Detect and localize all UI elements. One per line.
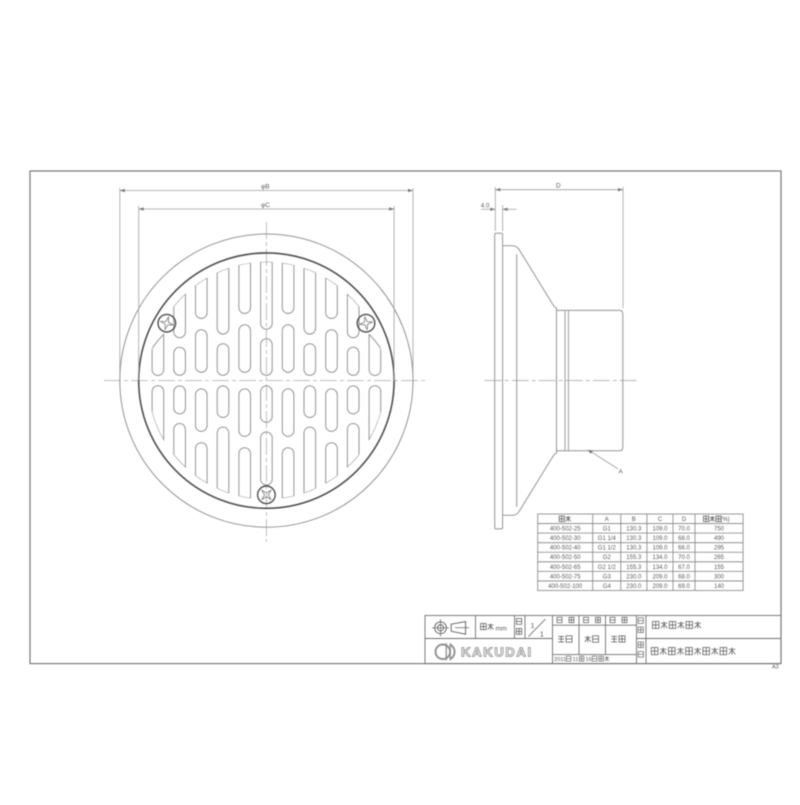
svg-text:130.3: 130.3	[626, 527, 642, 533]
svg-text:109.0: 109.0	[652, 536, 668, 542]
svg-text:G1 1/4: G1 1/4	[598, 536, 617, 542]
svg-text:A3: A3	[772, 665, 779, 671]
svg-text:400-502-40: 400-502-40	[550, 546, 581, 552]
svg-text:400-502-30: 400-502-30	[550, 536, 581, 542]
svg-text:G1 1/2: G1 1/2	[598, 546, 617, 552]
svg-text:G4: G4	[603, 584, 612, 590]
svg-text:130.3: 130.3	[626, 546, 642, 552]
svg-text:66.0: 66.0	[678, 546, 690, 552]
svg-text:(%): (%)	[720, 517, 729, 523]
svg-text:68.0: 68.0	[678, 574, 690, 580]
svg-text:750: 750	[714, 527, 725, 533]
svg-text:67.0: 67.0	[678, 565, 690, 571]
svg-text:295: 295	[714, 546, 725, 552]
svg-text:φC: φC	[261, 202, 270, 209]
svg-text:69.0: 69.0	[678, 584, 690, 590]
svg-text:16: 16	[586, 657, 592, 663]
svg-text:70.0: 70.0	[678, 527, 690, 533]
svg-text:400-502-100: 400-502-100	[548, 584, 583, 590]
svg-text:130.3: 130.3	[626, 536, 642, 542]
svg-text:4.0: 4.0	[481, 203, 490, 210]
svg-text:D: D	[556, 183, 561, 190]
svg-text:G2: G2	[603, 555, 612, 561]
svg-text:209.0: 209.0	[652, 574, 668, 580]
svg-text:155: 155	[714, 565, 725, 571]
svg-text:230.0: 230.0	[626, 574, 642, 580]
svg-text:B: B	[632, 517, 636, 523]
svg-text:mm: mm	[496, 625, 508, 632]
svg-text:134.0: 134.0	[652, 555, 668, 561]
svg-text:400-502-50: 400-502-50	[550, 555, 581, 561]
svg-text:209.0: 209.0	[652, 584, 668, 590]
svg-text:109.0: 109.0	[652, 546, 668, 552]
svg-text:68.0: 68.0	[678, 536, 690, 542]
svg-text:G3: G3	[603, 574, 612, 580]
svg-text:109.0: 109.0	[652, 527, 668, 533]
svg-text:C: C	[658, 517, 663, 523]
svg-text:A: A	[605, 517, 609, 523]
svg-text:400-502-65: 400-502-65	[550, 565, 581, 571]
svg-text:G2 1/2: G2 1/2	[598, 565, 617, 571]
svg-text:11: 11	[573, 657, 579, 663]
svg-text:265: 265	[714, 555, 725, 561]
svg-text:1: 1	[531, 621, 535, 630]
svg-text:400-502-25: 400-502-25	[550, 527, 581, 533]
svg-text:134.0: 134.0	[652, 565, 668, 571]
svg-text:300: 300	[714, 574, 725, 580]
svg-text:φB: φB	[261, 183, 270, 190]
svg-text:KAKUDAI: KAKUDAI	[461, 645, 533, 660]
svg-text:155.3: 155.3	[626, 565, 642, 571]
svg-text:70.0: 70.0	[678, 555, 690, 561]
svg-text:A: A	[619, 469, 624, 476]
svg-text:D: D	[682, 517, 687, 523]
svg-text:140: 140	[714, 584, 725, 590]
svg-text:G1: G1	[603, 527, 612, 533]
svg-text:2011: 2011	[554, 657, 566, 663]
svg-text:230.0: 230.0	[626, 584, 642, 590]
svg-text:400-502-75: 400-502-75	[550, 574, 581, 580]
svg-text:155.3: 155.3	[626, 555, 642, 561]
svg-text:490: 490	[714, 536, 725, 542]
svg-text:1: 1	[540, 630, 544, 639]
